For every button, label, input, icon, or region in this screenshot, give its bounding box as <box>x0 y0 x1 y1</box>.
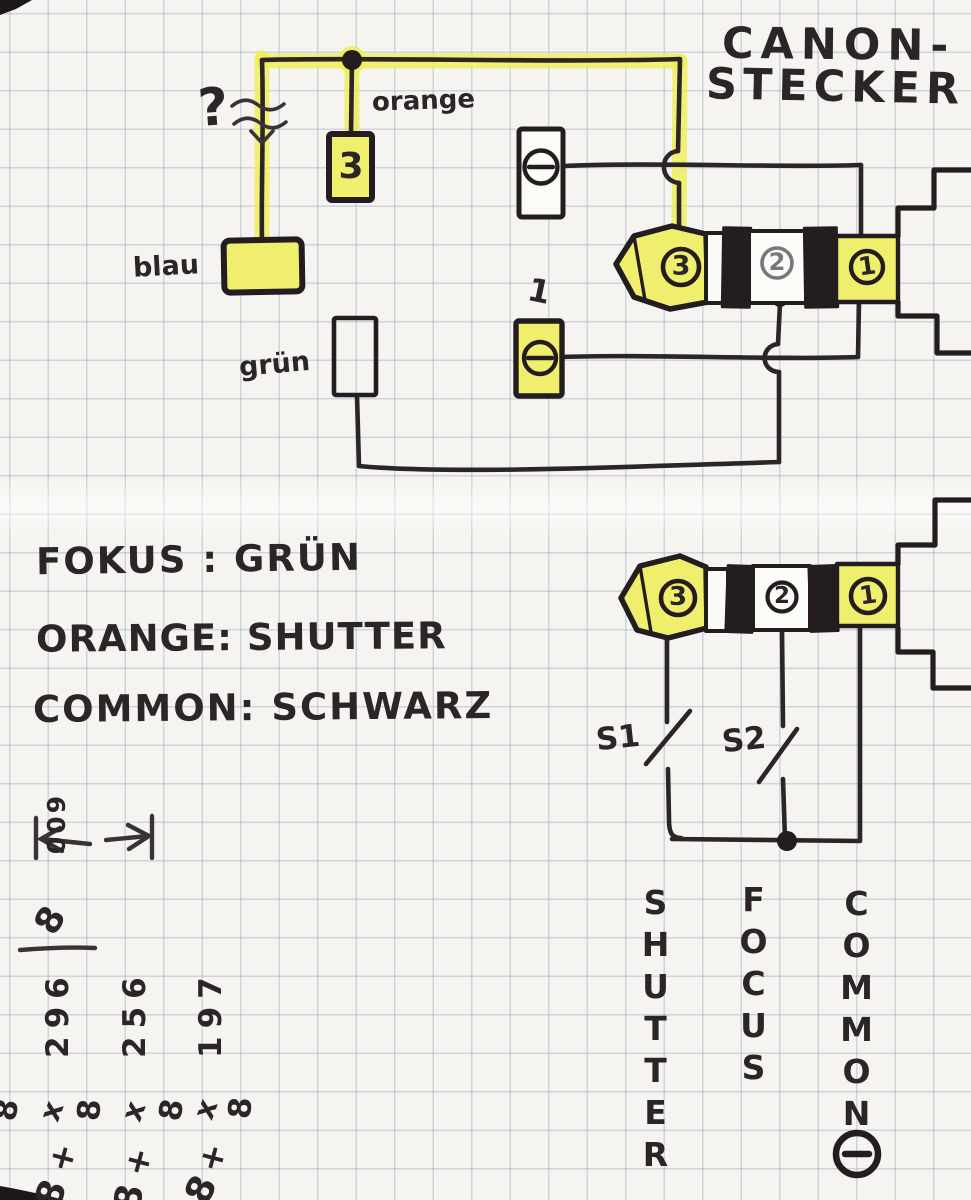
blau-wire-label: blau <box>132 249 200 283</box>
orange-wire-label: orange <box>372 84 476 118</box>
scratch-dimension-600: 600 <box>41 796 70 857</box>
plug-body-steps <box>898 500 971 688</box>
junction-common <box>777 831 797 851</box>
signal-label-common: COMMON <box>840 884 873 1136</box>
wire-pin3-drop-upper <box>678 60 680 151</box>
gruen-wire-label: grün <box>238 346 312 383</box>
wire-terminal-bottom <box>562 356 858 358</box>
plug-body-steps <box>898 170 971 353</box>
lower-pin3: 3 <box>669 582 687 612</box>
plug-insulator-1 <box>726 566 754 633</box>
junction-top <box>342 50 362 70</box>
question-mark-label: ? <box>196 77 230 139</box>
scratch-calc-2: 8 <box>71 1098 109 1123</box>
gruen-box <box>334 318 376 395</box>
wire-gruen-run <box>357 396 779 470</box>
blau-box <box>224 239 303 292</box>
note-common-schwarz: COMMON: SCHWARZ <box>33 684 494 731</box>
minus-terminal-bottom <box>516 321 562 396</box>
jack-plug-upper <box>616 170 971 353</box>
plug-insulator-2 <box>804 228 837 308</box>
lower-pin2: 2 <box>774 583 790 609</box>
plug-insulator-2 <box>809 566 838 632</box>
wire-terminal-top <box>563 165 861 166</box>
switch-s1-label: S1 <box>594 718 641 758</box>
scratch-number-256: 256 <box>117 969 153 1058</box>
minus-terminal-top <box>519 129 563 217</box>
plug-insulator-1 <box>722 228 750 307</box>
wire-common-bus <box>672 839 860 841</box>
wire-s2-bottom <box>783 779 785 840</box>
signal-label-shutter: SHUTTER <box>639 883 672 1177</box>
upper-pin3: 3 <box>672 250 691 281</box>
scratch-number-296: 296 <box>40 969 76 1058</box>
scratch-calc-6: 8 <box>222 1096 260 1121</box>
orange-box-pin-number: 3 <box>338 146 363 187</box>
wire-orange-drop <box>351 61 352 135</box>
note-fokus-gruen: FOKUS : GRÜN <box>36 536 362 584</box>
wire-s2-top <box>782 629 783 726</box>
wire-sleeve-bottom <box>858 302 859 357</box>
wire-s1-bottom <box>668 769 681 838</box>
switch-s2-label: S2 <box>720 720 767 760</box>
wire-pin2-a <box>778 303 780 344</box>
upper-pin2: 2 <box>769 248 786 276</box>
signal-label-focus: FOCUS <box>737 880 770 1090</box>
note-orange-shutter: ORANGE: SHUTTER <box>36 614 447 661</box>
scratch-number-197: 197 <box>193 969 229 1058</box>
dimension-marks <box>20 816 152 950</box>
common-minus-symbol <box>836 1133 878 1175</box>
eight-underline <box>20 948 95 950</box>
title-line2: STECKER <box>706 59 966 114</box>
wire-top-bus <box>262 59 680 60</box>
wire-blau-vertical <box>262 60 263 241</box>
highlighter-strokes <box>262 46 680 240</box>
hand-drawn-wiring-diagram: CANON- STECKER ? orange blau grün 3 1 3 … <box>0 0 971 1200</box>
